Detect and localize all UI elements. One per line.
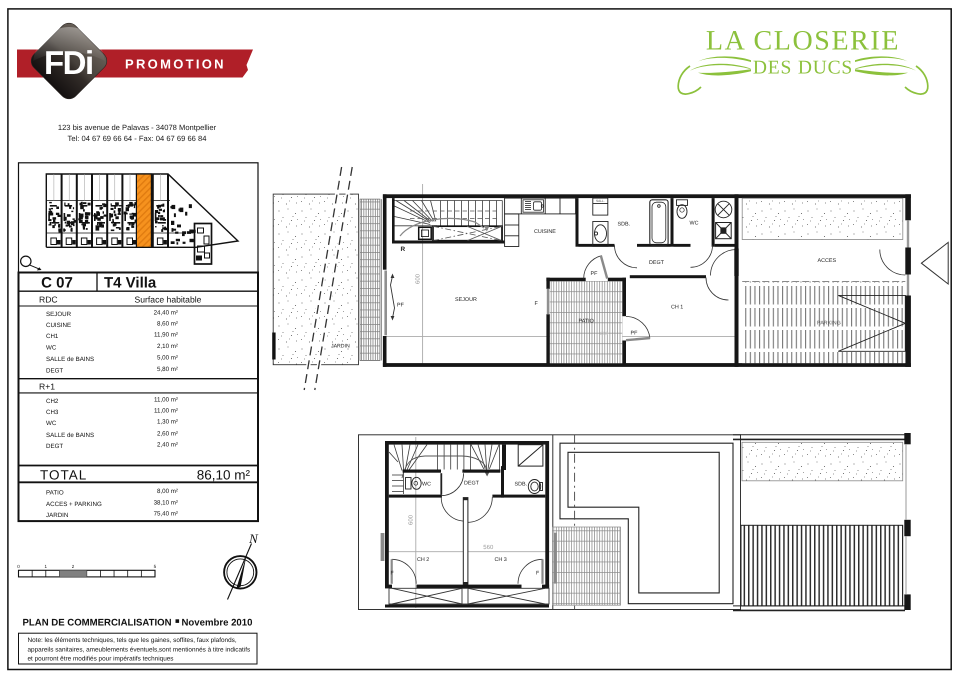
svg-text:CH1: CH1 [46, 333, 59, 340]
svg-text:2: 2 [72, 564, 75, 569]
svg-text:PARKING: PARKING [817, 321, 841, 327]
svg-text:5: 5 [154, 564, 157, 569]
svg-text:PF: PF [591, 271, 599, 277]
svg-text:600: 600 [408, 514, 415, 525]
svg-text:et pourront être modifiés pour: et pourront être modifiés pour impératif… [28, 656, 174, 663]
svg-text:600: 600 [415, 273, 422, 284]
svg-text:RDC: RDC [39, 295, 58, 305]
svg-text:PROMOTION: PROMOTION [125, 56, 226, 71]
svg-text:38,10 m²: 38,10 m² [154, 499, 178, 506]
svg-text:DEGT: DEGT [46, 368, 63, 375]
svg-text:24,40 m²: 24,40 m² [154, 309, 178, 316]
svg-text:DEGT: DEGT [649, 260, 665, 266]
svg-text:F: F [536, 570, 539, 576]
svg-text:SALLE de BAINS: SALLE de BAINS [46, 356, 94, 363]
svg-text:PF: PF [397, 303, 405, 309]
svg-text:1,30 m²: 1,30 m² [157, 419, 178, 426]
svg-text:CH 2: CH 2 [417, 557, 429, 563]
svg-text:appareils sanitaires, ameublem: appareils sanitaires, ameublements évent… [28, 646, 251, 653]
svg-text:75,40 m²: 75,40 m² [154, 511, 178, 518]
svg-text:CUISINE: CUISINE [46, 322, 71, 329]
svg-text:11,00 m²: 11,00 m² [154, 408, 178, 415]
svg-text:FDi: FDi [44, 44, 93, 81]
svg-text:TOTAL: TOTAL [40, 468, 87, 483]
svg-text:8,60 m²: 8,60 m² [157, 321, 178, 328]
svg-text:R+1: R+1 [39, 382, 55, 392]
svg-text:F: F [391, 570, 394, 576]
svg-text:CH3: CH3 [46, 409, 59, 416]
svg-text:DES DUCS: DES DUCS [753, 58, 853, 79]
svg-text:SEJOUR: SEJOUR [46, 311, 72, 318]
svg-text:F: F [535, 301, 539, 307]
svg-text:5,80 m²: 5,80 m² [157, 366, 178, 373]
svg-text:2,10 m²: 2,10 m² [157, 343, 178, 350]
svg-text:SDB.: SDB. [618, 221, 631, 227]
svg-text:C 07: C 07 [41, 275, 73, 292]
svg-text:123 bis avenue de Palavas - 34: 123 bis avenue de Palavas - 34078 Montpe… [58, 123, 217, 132]
svg-text:Novembre 2010: Novembre 2010 [182, 618, 253, 629]
svg-text:Note: les éléments techniques,: Note: les éléments techniques, tels que … [28, 637, 237, 644]
svg-text:DEGT: DEGT [46, 443, 63, 450]
svg-text:11,00 m²: 11,00 m² [154, 397, 178, 404]
svg-text:SALLE de BAINS: SALLE de BAINS [46, 432, 94, 439]
svg-text:SEJOUR: SEJOUR [455, 297, 477, 303]
svg-text:JARDIN: JARDIN [331, 344, 350, 350]
svg-text:T4 Villa: T4 Villa [104, 275, 157, 292]
svg-text:CH 1: CH 1 [671, 304, 683, 310]
svg-text:PATIO: PATIO [46, 489, 64, 496]
svg-text:ACCES: ACCES [818, 258, 837, 264]
svg-text:R: R [401, 246, 406, 253]
svg-text:8,00 m²: 8,00 m² [157, 488, 178, 495]
svg-text:5,00 m²: 5,00 m² [157, 355, 178, 362]
svg-text:SALL.: SALL. [596, 199, 605, 203]
svg-text:11,90 m²: 11,90 m² [154, 332, 178, 339]
svg-text:1: 1 [45, 564, 48, 569]
svg-text:DEGT: DEGT [464, 481, 480, 487]
svg-text:0: 0 [17, 564, 20, 569]
svg-text:CH2: CH2 [46, 398, 59, 405]
svg-text:PLAN DE COMMERCIALISATION: PLAN DE COMMERCIALISATION [23, 618, 172, 629]
svg-text:86,10 m²: 86,10 m² [197, 468, 251, 483]
svg-text:JARDIN: JARDIN [46, 512, 68, 519]
svg-text:LA CLOSERIE: LA CLOSERIE [706, 26, 900, 57]
svg-text:CUISINE: CUISINE [534, 229, 556, 235]
svg-text:N: N [248, 531, 259, 546]
svg-text:2,60 m²: 2,60 m² [157, 430, 178, 437]
svg-text:WC: WC [46, 345, 57, 352]
svg-text:CH 3: CH 3 [495, 557, 507, 563]
svg-text:WC: WC [690, 220, 699, 226]
svg-text:WC: WC [46, 420, 57, 427]
svg-text:ACCES + PARKING: ACCES + PARKING [46, 501, 102, 508]
svg-text:Tel: 04 67 69 66 64 - Fax: 04: Tel: 04 67 69 66 64 - Fax: 04 67 69 66 8… [68, 134, 207, 143]
svg-text:250: 250 [600, 331, 608, 336]
svg-text:2,40 m²: 2,40 m² [157, 441, 178, 448]
svg-text:SDB.: SDB. [515, 481, 528, 487]
svg-text:Surface habitable: Surface habitable [135, 295, 202, 305]
svg-text:PATIO: PATIO [579, 319, 594, 325]
svg-text:WC: WC [422, 481, 431, 487]
svg-text:PF: PF [631, 331, 639, 337]
svg-text:560: 560 [483, 544, 494, 551]
